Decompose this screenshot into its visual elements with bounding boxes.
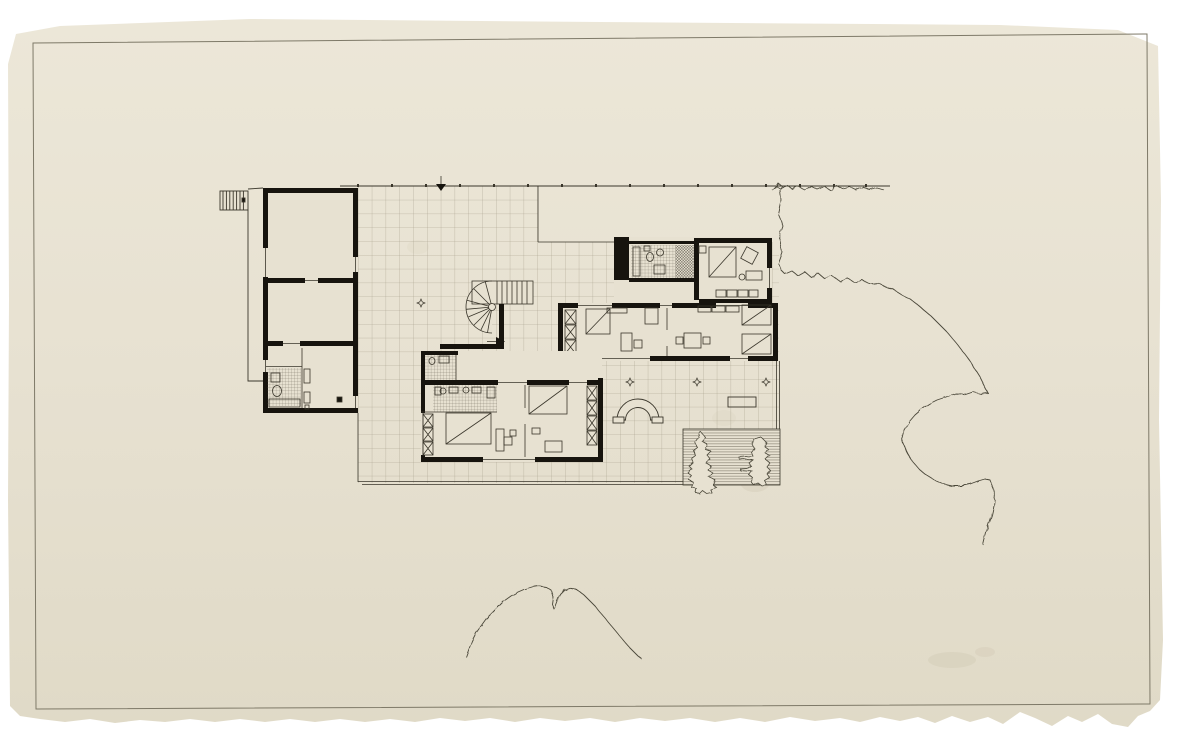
service-wing-left [263,188,358,413]
chimney-block [614,237,629,280]
kitchen-bath-wing-top [614,237,772,303]
small-bath-tiled-floor [424,355,456,380]
scanned-drawing-page [0,0,1200,750]
floor-plan-drawing [0,0,1200,750]
planting-bed [683,429,780,494]
bathroom-tiled-floor [267,368,301,406]
bath-tiled-floor [631,245,675,278]
stair-hatch-block [675,245,694,278]
bedroom-wing-lower [421,351,603,462]
